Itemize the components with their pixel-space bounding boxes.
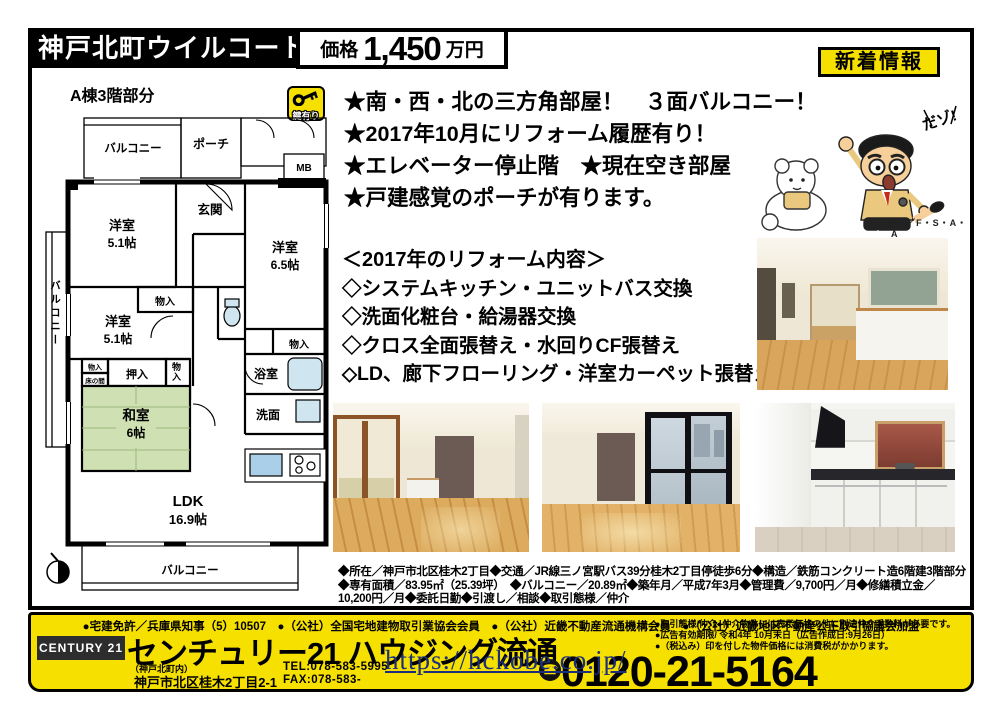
label-oshiire: 押入 xyxy=(126,367,148,381)
label-washitsu: 和室 xyxy=(123,407,150,423)
label-washitsu-size: 6帖 xyxy=(127,425,146,440)
fax-number: FAX:078-583- xyxy=(283,674,388,687)
reform-item: ◇クロス全面張替え・水回りCF張替え xyxy=(342,332,802,361)
tel-number: TEL:078-583-5995 xyxy=(283,661,388,674)
label-mb: MB xyxy=(296,163,312,174)
price-label: 価格 xyxy=(320,35,358,62)
legal-note: ●取引態様/仲介●仲介物件には表示価格の他に別途仲介手数料が必要です。 xyxy=(655,619,973,630)
label-balcony-top: バルコニー xyxy=(104,142,161,155)
reform-item: ◇システムキッチン・ユニットバス交換 xyxy=(342,275,802,304)
price-unit: 万円 xyxy=(446,35,484,62)
label-ldk: LDK xyxy=(173,493,204,510)
label-closet1: 物入 xyxy=(155,295,175,308)
century21-logo: CENTURY 21 xyxy=(37,636,125,660)
building-label: A棟3階部分 xyxy=(70,82,154,106)
floor-plan: バルコニー ポーチ MB 玄関 洋室 5.1帖 洋室 6.5帖 物入 洋室 5.… xyxy=(38,104,338,609)
label-western3: 洋室 xyxy=(105,314,131,329)
photo-living-tatami xyxy=(333,403,529,552)
page-title: 神戸北町ウイルコート xyxy=(28,28,296,68)
main-frame: 神戸北町ウイルコート 価格 1,450 万円 新着情報 A棟3階部分 鍵有り xyxy=(28,28,974,610)
company-address: 神戸市北区桂木2丁目2-1 xyxy=(134,672,277,691)
reform-title: ＜2017年のリフォーム内容＞ xyxy=(342,246,802,275)
reform-item: ◇洗面化粧台・給湯器交換 xyxy=(342,303,802,332)
shiro-dog xyxy=(762,159,826,230)
label-western1-size: 5.1帖 xyxy=(108,235,137,250)
label-western2-size: 6.5帖 xyxy=(271,257,300,272)
label-western1: 洋室 xyxy=(109,218,135,233)
price-box: 価格 1,450 万円 xyxy=(296,28,508,69)
label-wash: 洗面 xyxy=(256,407,280,422)
label-ldk-size: 16.9帖 xyxy=(169,512,207,527)
label-closet3: 物入 xyxy=(289,338,309,351)
property-details: ◆所在／神戸市北区桂木2丁目◆交通／JR線三ノ宮駅バス39分桂木2丁目停徒歩6分… xyxy=(338,566,968,607)
reform-list: ＜2017年のリフォーム内容＞ ◇システムキッチン・ユニットバス交換 ◇洗面化粧… xyxy=(342,246,802,389)
label-closet2: 物入 xyxy=(88,363,102,372)
label-balcony-bottom: バルコニー xyxy=(161,564,218,577)
label-closet-vertical: 物入 xyxy=(170,362,183,382)
compass-icon xyxy=(47,553,69,583)
tel-fax: TEL:078-583-5995 FAX:078-583- xyxy=(283,661,388,687)
label-tokonoma: 床の間 xyxy=(85,376,105,385)
label-western3-size: 5.1帖 xyxy=(104,331,133,346)
photo-living-counter-kitchen xyxy=(757,238,948,390)
speech-text: だゾ! xyxy=(920,107,959,134)
photo-kitchen xyxy=(755,403,955,552)
price-value: 1,450 xyxy=(363,30,441,68)
label-porch: ポーチ xyxy=(193,136,229,151)
watermark-url: https://hckobe.co.jp/ xyxy=(385,645,626,676)
label-bath: 浴室 xyxy=(254,366,278,381)
flyer-page: 神戸北町ウイルコート 価格 1,450 万円 新着情報 A棟3階部分 鍵有り xyxy=(0,0,1000,708)
label-genkan: 玄関 xyxy=(197,202,222,217)
label-western2: 洋室 xyxy=(272,240,298,255)
legal-note: ●広告有効期限/ 令和4年 10月末日（広告作成日:9月26日） xyxy=(655,630,973,641)
photo-living-windows xyxy=(542,403,740,552)
new-info-badge: 新着情報 xyxy=(818,47,940,77)
label-balcony-left: バルコニー xyxy=(48,280,63,348)
reform-item: ◇LD、廊下フローリング・洋室カーペット張替え xyxy=(342,360,802,389)
character-copyright: ©U／F・S・A・A xyxy=(891,216,970,239)
